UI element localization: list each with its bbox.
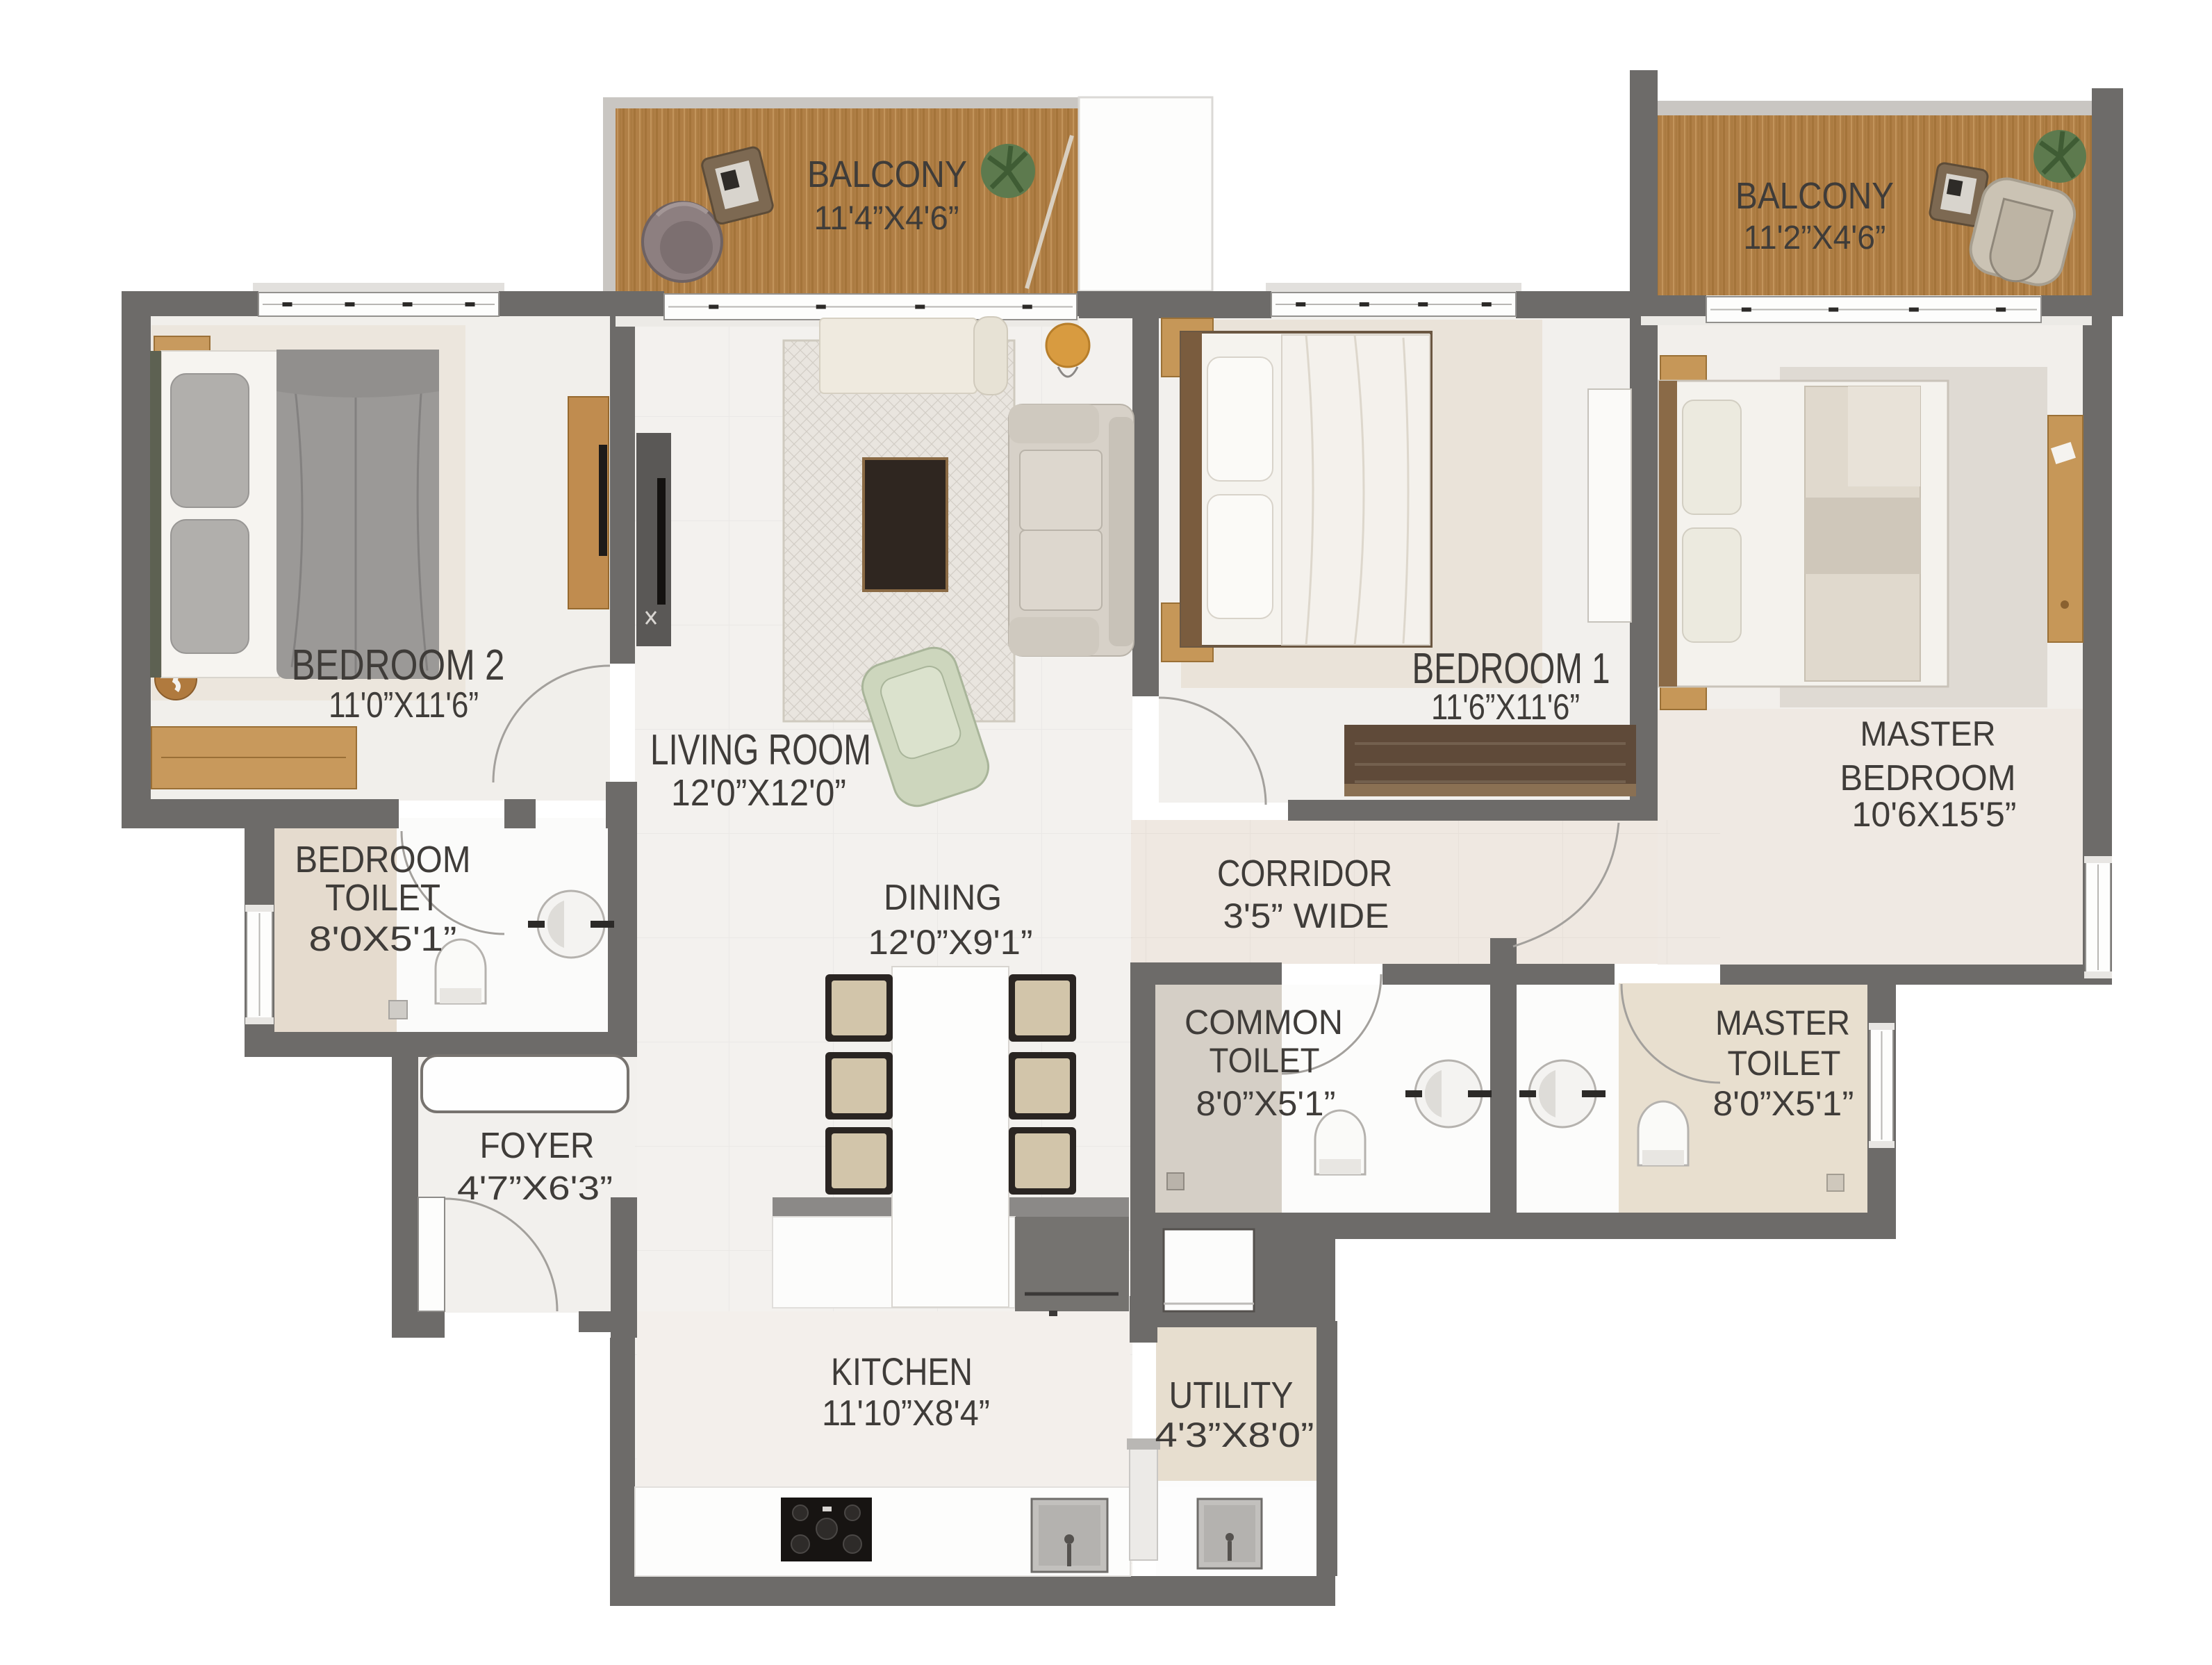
- svg-text:TOILET: TOILET: [1728, 1044, 1841, 1083]
- svg-text:LIVING ROOM: LIVING ROOM: [650, 726, 871, 774]
- svg-text:3'5” WIDE: 3'5” WIDE: [1223, 896, 1389, 935]
- svg-text:BALCONY: BALCONY: [1735, 175, 1894, 217]
- svg-text:KITCHEN: KITCHEN: [831, 1350, 973, 1393]
- svg-text:MASTER: MASTER: [1860, 714, 1996, 753]
- svg-text:BEDROOM: BEDROOM: [1840, 758, 2016, 798]
- svg-text:11'2”X4'6”: 11'2”X4'6”: [1744, 220, 1886, 256]
- svg-text:12'0”X12'0”: 12'0”X12'0”: [671, 772, 846, 814]
- svg-text:8'0X5'1”: 8'0X5'1”: [309, 919, 457, 958]
- svg-text:COMMON: COMMON: [1185, 1003, 1343, 1042]
- svg-text:8'0”X5'1”: 8'0”X5'1”: [1713, 1084, 1854, 1123]
- svg-text:4'3”X8'0”: 4'3”X8'0”: [1155, 1416, 1314, 1454]
- svg-text:TOILET: TOILET: [1210, 1041, 1320, 1080]
- svg-text:BEDROOM: BEDROOM: [295, 839, 471, 880]
- svg-text:BEDROOM 1: BEDROOM 1: [1412, 645, 1610, 693]
- svg-text:BALCONY: BALCONY: [807, 154, 967, 195]
- svg-text:11'0”X11'6”: 11'0”X11'6”: [329, 685, 479, 725]
- svg-text:10'6X15'5”: 10'6X15'5”: [1852, 795, 2017, 834]
- svg-text:11'6”X11'6”: 11'6”X11'6”: [1431, 687, 1580, 728]
- svg-text:DINING: DINING: [884, 878, 1002, 918]
- svg-text:11'4”X4'6”: 11'4”X4'6”: [814, 200, 959, 237]
- svg-text:BEDROOM 2: BEDROOM 2: [292, 641, 505, 689]
- svg-text:TOILET: TOILET: [325, 877, 440, 919]
- svg-text:11'10”X8'4”: 11'10”X8'4”: [822, 1393, 990, 1434]
- svg-text:FOYER: FOYER: [480, 1126, 595, 1166]
- svg-text:CORRIDOR: CORRIDOR: [1217, 853, 1392, 894]
- svg-text:8'0”X5'1”: 8'0”X5'1”: [1196, 1084, 1336, 1123]
- svg-text:MASTER: MASTER: [1715, 1003, 1850, 1042]
- svg-text:4'7”X6'3”: 4'7”X6'3”: [457, 1170, 613, 1207]
- svg-text:12'0”X9'1”: 12'0”X9'1”: [868, 923, 1033, 962]
- svg-text:UTILITY: UTILITY: [1169, 1375, 1294, 1416]
